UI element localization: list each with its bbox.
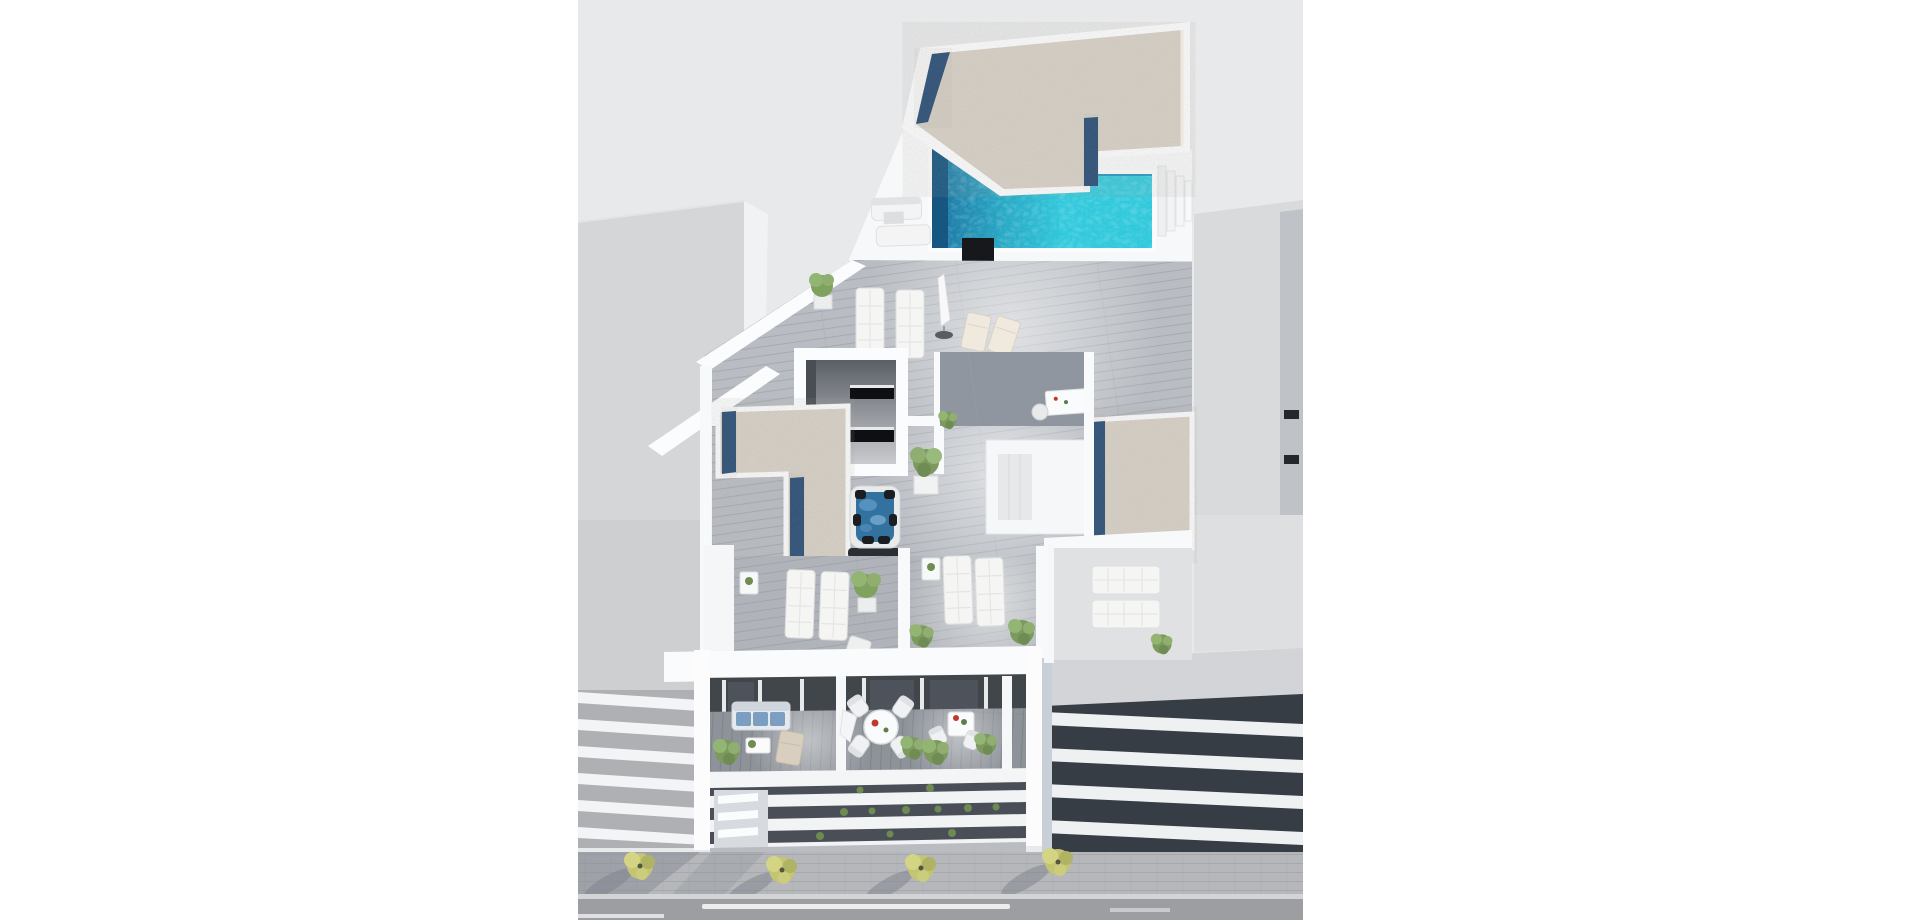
desk-chair	[1032, 404, 1048, 420]
sun-lounger	[943, 555, 973, 624]
balcony-level: Balcony level: blue sofa set, round dini…	[690, 674, 1042, 800]
sun-lounger	[896, 290, 924, 358]
sun-lounger	[819, 572, 849, 641]
right-terrace	[1044, 530, 1192, 663]
round-table	[864, 710, 898, 744]
sun-lounger	[975, 557, 1005, 626]
lane-marking	[1110, 908, 1170, 912]
street-level: Asphalt road with white lane markings	[578, 848, 1303, 920]
neighbor-window-slit	[1284, 455, 1299, 464]
desk	[1045, 389, 1089, 416]
architectural-render: Neighbouring building (left) with stripe…	[0, 0, 1920, 920]
side-table	[922, 558, 940, 580]
window-slit	[850, 430, 894, 442]
sun-lounger	[856, 288, 884, 356]
side-table	[740, 572, 758, 594]
sun-lounger	[1092, 600, 1160, 628]
sun-lounger	[1092, 566, 1160, 594]
red-table-accent	[872, 720, 879, 727]
curb	[578, 894, 1303, 899]
bedroom-terrace	[938, 350, 1089, 430]
sun-lounger	[785, 570, 815, 639]
white-room	[986, 440, 1086, 534]
window-slit	[850, 388, 894, 399]
lane-marking	[578, 914, 664, 918]
neighbor-window-slit	[1284, 410, 1299, 419]
road	[578, 899, 1303, 920]
lane-marking	[702, 904, 1010, 909]
louver-vents	[714, 790, 768, 848]
